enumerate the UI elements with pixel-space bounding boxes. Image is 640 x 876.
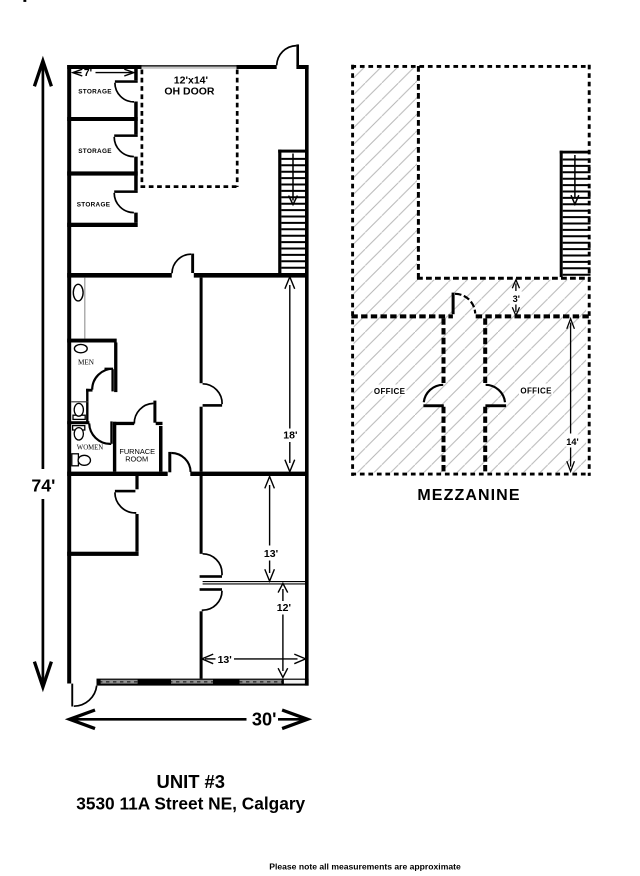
svg-text:MEZZANINE: MEZZANINE	[417, 487, 520, 504]
svg-text:ROOM: ROOM	[125, 455, 148, 464]
svg-text:13': 13'	[264, 548, 278, 560]
svg-text:7': 7'	[84, 68, 92, 79]
svg-text:STORAGE: STORAGE	[77, 202, 111, 209]
svg-text:STORAGE: STORAGE	[78, 148, 112, 155]
svg-text:13': 13'	[218, 654, 232, 666]
svg-text:3': 3'	[513, 294, 520, 304]
svg-text:OFFICE: OFFICE	[374, 387, 406, 396]
svg-text:3530 11A Street NE, Calgary: 3530 11A Street NE, Calgary	[76, 793, 305, 813]
svg-text:Please note all measurements a: Please note all measurements are approxi…	[269, 861, 461, 871]
svg-text:12': 12'	[277, 602, 291, 614]
svg-text:OFFICE: OFFICE	[520, 386, 552, 395]
svg-text:14': 14'	[566, 437, 578, 447]
svg-text:30': 30'	[252, 709, 277, 729]
svg-text:74': 74'	[31, 476, 55, 496]
svg-text:MEN: MEN	[78, 358, 95, 366]
svg-text:STORAGE: STORAGE	[78, 89, 112, 96]
svg-text:18': 18'	[283, 429, 297, 441]
svg-text:UNIT #3: UNIT #3	[157, 771, 225, 792]
svg-text:WOMEN: WOMEN	[77, 444, 104, 451]
svg-text:OH DOOR: OH DOOR	[164, 86, 215, 98]
